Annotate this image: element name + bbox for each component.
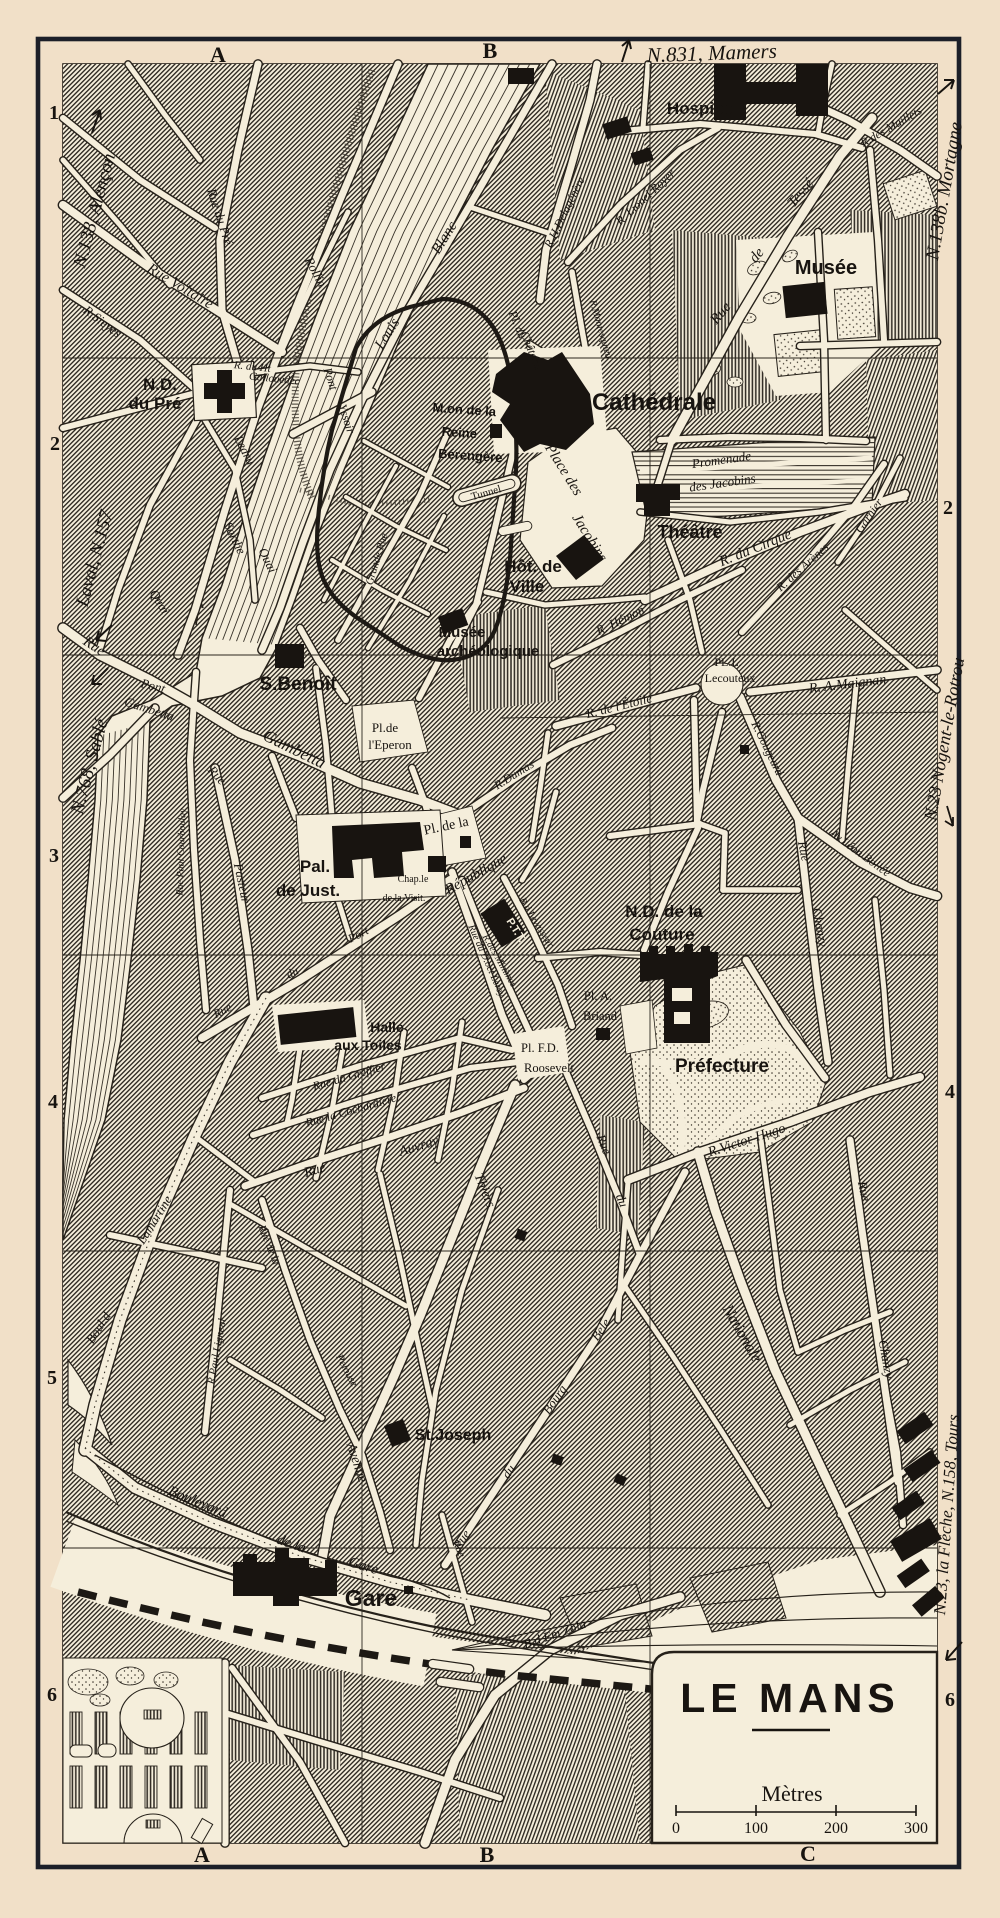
svg-text:B: B — [480, 1842, 495, 1867]
svg-text:Théâtre: Théâtre — [657, 522, 722, 542]
svg-text:aux Toiles: aux Toiles — [334, 1037, 402, 1053]
svg-text:Couture: Couture — [629, 925, 694, 944]
svg-text:Reine: Reine — [441, 424, 477, 441]
svg-text:N.D.: N.D. — [143, 375, 177, 394]
svg-text:Mètres: Mètres — [761, 1781, 822, 1806]
svg-text:de Just.: de Just. — [276, 881, 340, 900]
svg-text:Musée: Musée — [439, 624, 486, 641]
svg-text:S.Benoît: S.Benoît — [259, 674, 337, 695]
svg-text:LE MANS: LE MANS — [680, 1675, 900, 1721]
svg-text:du Pré: du Pré — [129, 394, 182, 413]
svg-text:N.831, Mamers: N.831, Mamers — [645, 39, 777, 68]
svg-text:0: 0 — [672, 1820, 680, 1837]
svg-text:Briand: Briand — [583, 1009, 618, 1023]
svg-text:2: 2 — [50, 433, 60, 455]
svg-text:A: A — [210, 42, 226, 67]
svg-text:l'Eperon: l'Eperon — [368, 737, 412, 752]
svg-text:A: A — [194, 1842, 210, 1867]
svg-text:C: C — [800, 1841, 816, 1866]
svg-text:6: 6 — [47, 1684, 57, 1706]
svg-text:Pal.: Pal. — [300, 857, 330, 876]
svg-text:100: 100 — [744, 1820, 768, 1837]
svg-text:Chap.le: Chap.le — [398, 874, 429, 885]
svg-text:Musée: Musée — [795, 257, 857, 279]
svg-text:200: 200 — [824, 1820, 848, 1837]
svg-text:Pl. F.D.: Pl. F.D. — [521, 1041, 559, 1055]
svg-text:Hospice: Hospice — [667, 99, 733, 118]
svg-text:Roosevelt: Roosevelt — [524, 1061, 575, 1075]
svg-text:4: 4 — [945, 1081, 955, 1103]
svg-text:3: 3 — [49, 845, 59, 867]
svg-text:Préfecture: Préfecture — [675, 1056, 769, 1077]
svg-text:5: 5 — [47, 1367, 57, 1389]
svg-text:Cathédrale: Cathédrale — [592, 389, 716, 416]
svg-text:Hôt. de: Hôt. de — [504, 557, 562, 576]
svg-text:Lecouteux: Lecouteux — [705, 671, 756, 685]
svg-text:St.Joseph: St.Joseph — [415, 1427, 491, 1444]
svg-text:Halle: Halle — [370, 1019, 404, 1035]
svg-text:300: 300 — [904, 1820, 928, 1837]
svg-text:N.D. de la: N.D. de la — [625, 902, 703, 921]
svg-text:2: 2 — [943, 497, 953, 519]
svg-text:Gare: Gare — [345, 1585, 397, 1611]
svg-text:4: 4 — [48, 1091, 58, 1113]
svg-text:de la Visit.: de la Visit. — [383, 893, 426, 904]
svg-text:Ville: Ville — [510, 577, 545, 596]
svg-text:Pl.de: Pl.de — [372, 720, 399, 735]
svg-text:PL.L.: PL.L. — [714, 655, 741, 669]
svg-text:B: B — [483, 38, 498, 63]
svg-text:6: 6 — [945, 1689, 955, 1711]
svg-text:1: 1 — [49, 102, 59, 124]
svg-text:archéologique: archéologique — [437, 643, 540, 660]
svg-text:Pl. A.: Pl. A. — [584, 989, 612, 1003]
